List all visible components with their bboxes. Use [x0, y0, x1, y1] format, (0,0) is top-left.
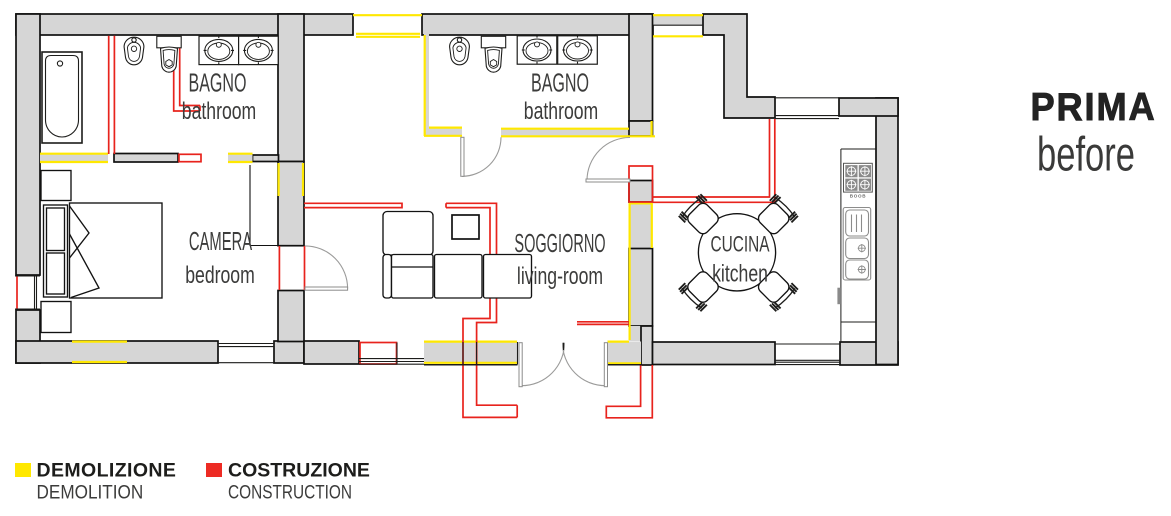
- svg-text:PRIMA: PRIMA: [1030, 85, 1156, 128]
- svg-text:bedroom: bedroom: [185, 261, 255, 289]
- svg-text:bathroom: bathroom: [524, 97, 598, 125]
- svg-text:before: before: [1037, 127, 1135, 181]
- svg-text:CONSTRUCTION: CONSTRUCTION: [228, 481, 352, 503]
- svg-text:DEMOLITION: DEMOLITION: [37, 480, 144, 502]
- svg-text:BAGNO: BAGNO: [189, 69, 247, 98]
- svg-text:living-room: living-room: [517, 262, 603, 290]
- svg-text:DEMOLIZIONE: DEMOLIZIONE: [37, 460, 177, 482]
- svg-text:bathroom: bathroom: [182, 97, 256, 125]
- svg-text:COSTRUZIONE: COSTRUZIONE: [228, 460, 370, 482]
- svg-text:SOGGIORNO: SOGGIORNO: [514, 230, 605, 258]
- svg-text:CUCINA: CUCINA: [711, 233, 770, 257]
- svg-text:CAMERA: CAMERA: [189, 228, 252, 256]
- svg-text:BOOB: BOOB: [850, 194, 867, 199]
- svg-text:kitchen: kitchen: [712, 260, 768, 288]
- svg-text:BAGNO: BAGNO: [531, 69, 589, 98]
